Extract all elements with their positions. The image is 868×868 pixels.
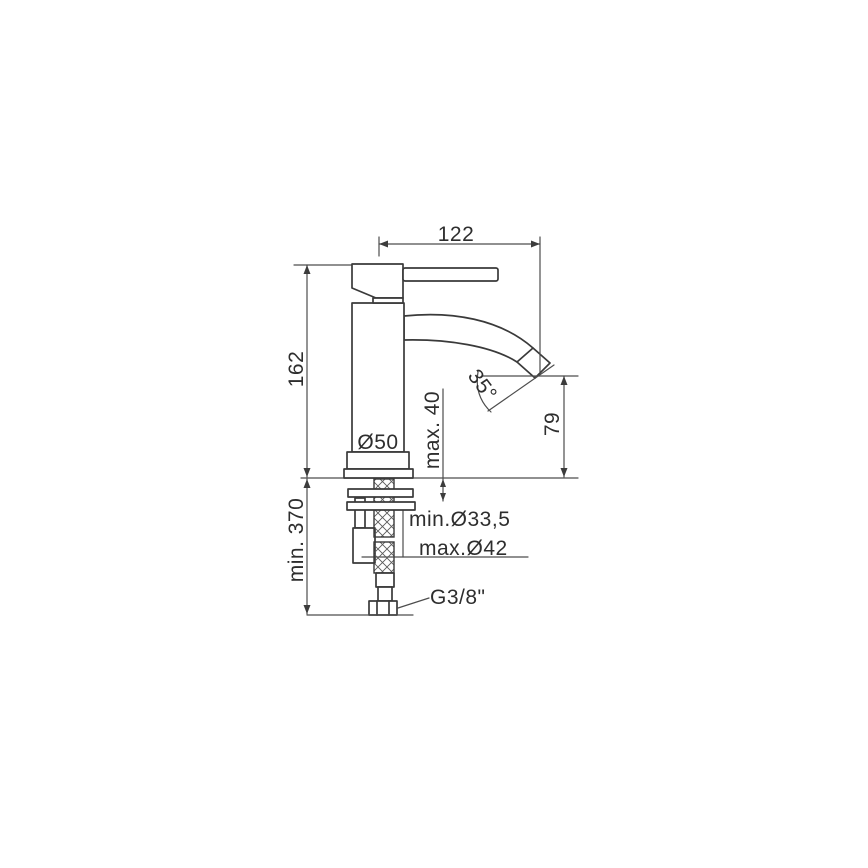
reach-arrow-left (379, 241, 388, 248)
dim-outlet-height-label: 79 (541, 412, 564, 436)
drawing-canvas: 122 162 Ø50 max. 40 35° 79 min.Ø33,5 max… (0, 0, 868, 868)
base-flange (347, 452, 409, 469)
dim-spout-reach-label: 122 (438, 223, 475, 246)
deck-thickness-arrow-bottom (440, 493, 446, 501)
hose-connector-nut (369, 601, 397, 615)
dim-body-diameter-label: Ø50 (357, 431, 398, 454)
clamping-plate (347, 502, 415, 510)
dim-min-hose-label: min. 370 (285, 498, 308, 583)
thread-leader-line (398, 598, 429, 608)
dim-min-hole-label: min.Ø33,5 (409, 508, 510, 531)
height-arrow-bottom (304, 468, 311, 477)
faucet-body-cylinder (352, 303, 404, 452)
housing-ring (373, 298, 403, 303)
outlet-height-arrow-top (561, 376, 568, 385)
deck-thickness-arrow-top (440, 479, 446, 487)
hose-tube (378, 587, 392, 601)
horseshoe-washer (348, 489, 413, 497)
faucet-technical-drawing: 122 162 Ø50 max. 40 35° 79 min.Ø33,5 max… (0, 0, 868, 868)
handle-housing (352, 264, 403, 298)
height-arrow-top (304, 265, 311, 274)
hose-length-arrow-top (304, 479, 311, 488)
hose-length-arrow-bottom (304, 605, 311, 614)
mounting-nut (353, 528, 375, 563)
dim-angle-label: 35° (463, 365, 501, 405)
hose-collar (376, 573, 394, 587)
dim-max-deck-label: max. 40 (421, 391, 444, 469)
outlet-height-arrow-bottom (561, 468, 568, 477)
handle-lever (403, 268, 498, 281)
supply-hose (369, 573, 429, 615)
reach-arrow-right (531, 241, 540, 248)
threaded-shank-lower (374, 542, 394, 573)
base-lip (344, 469, 413, 478)
thread-size-label: G3/8" (430, 586, 485, 609)
dim-height-label: 162 (285, 351, 308, 388)
dim-max-hole-label: max.Ø42 (419, 537, 508, 560)
